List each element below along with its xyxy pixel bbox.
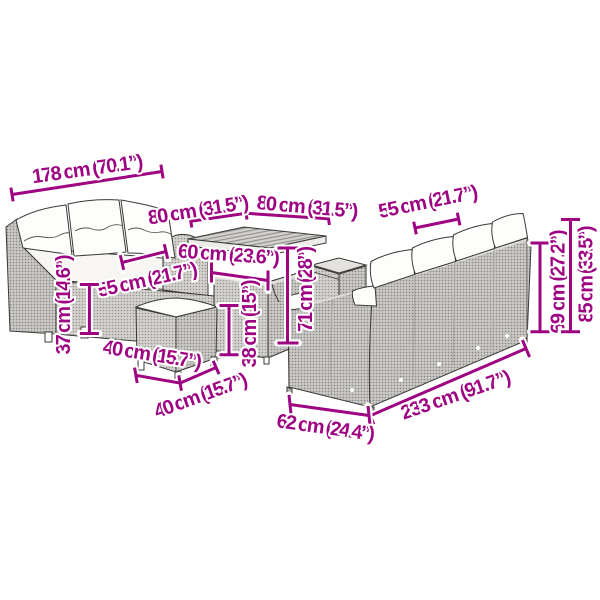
svg-text:85 cm (33.5”): 85 cm (33.5”) xyxy=(576,226,598,323)
svg-text:38 cm (15”): 38 cm (15”) xyxy=(239,280,261,368)
svg-text:37 cm (14.6”): 37 cm (14.6”) xyxy=(53,255,75,355)
svg-text:69 cm (27.2”): 69 cm (27.2”) xyxy=(548,230,570,334)
svg-text:71 cm (28”): 71 cm (28”) xyxy=(295,246,317,332)
